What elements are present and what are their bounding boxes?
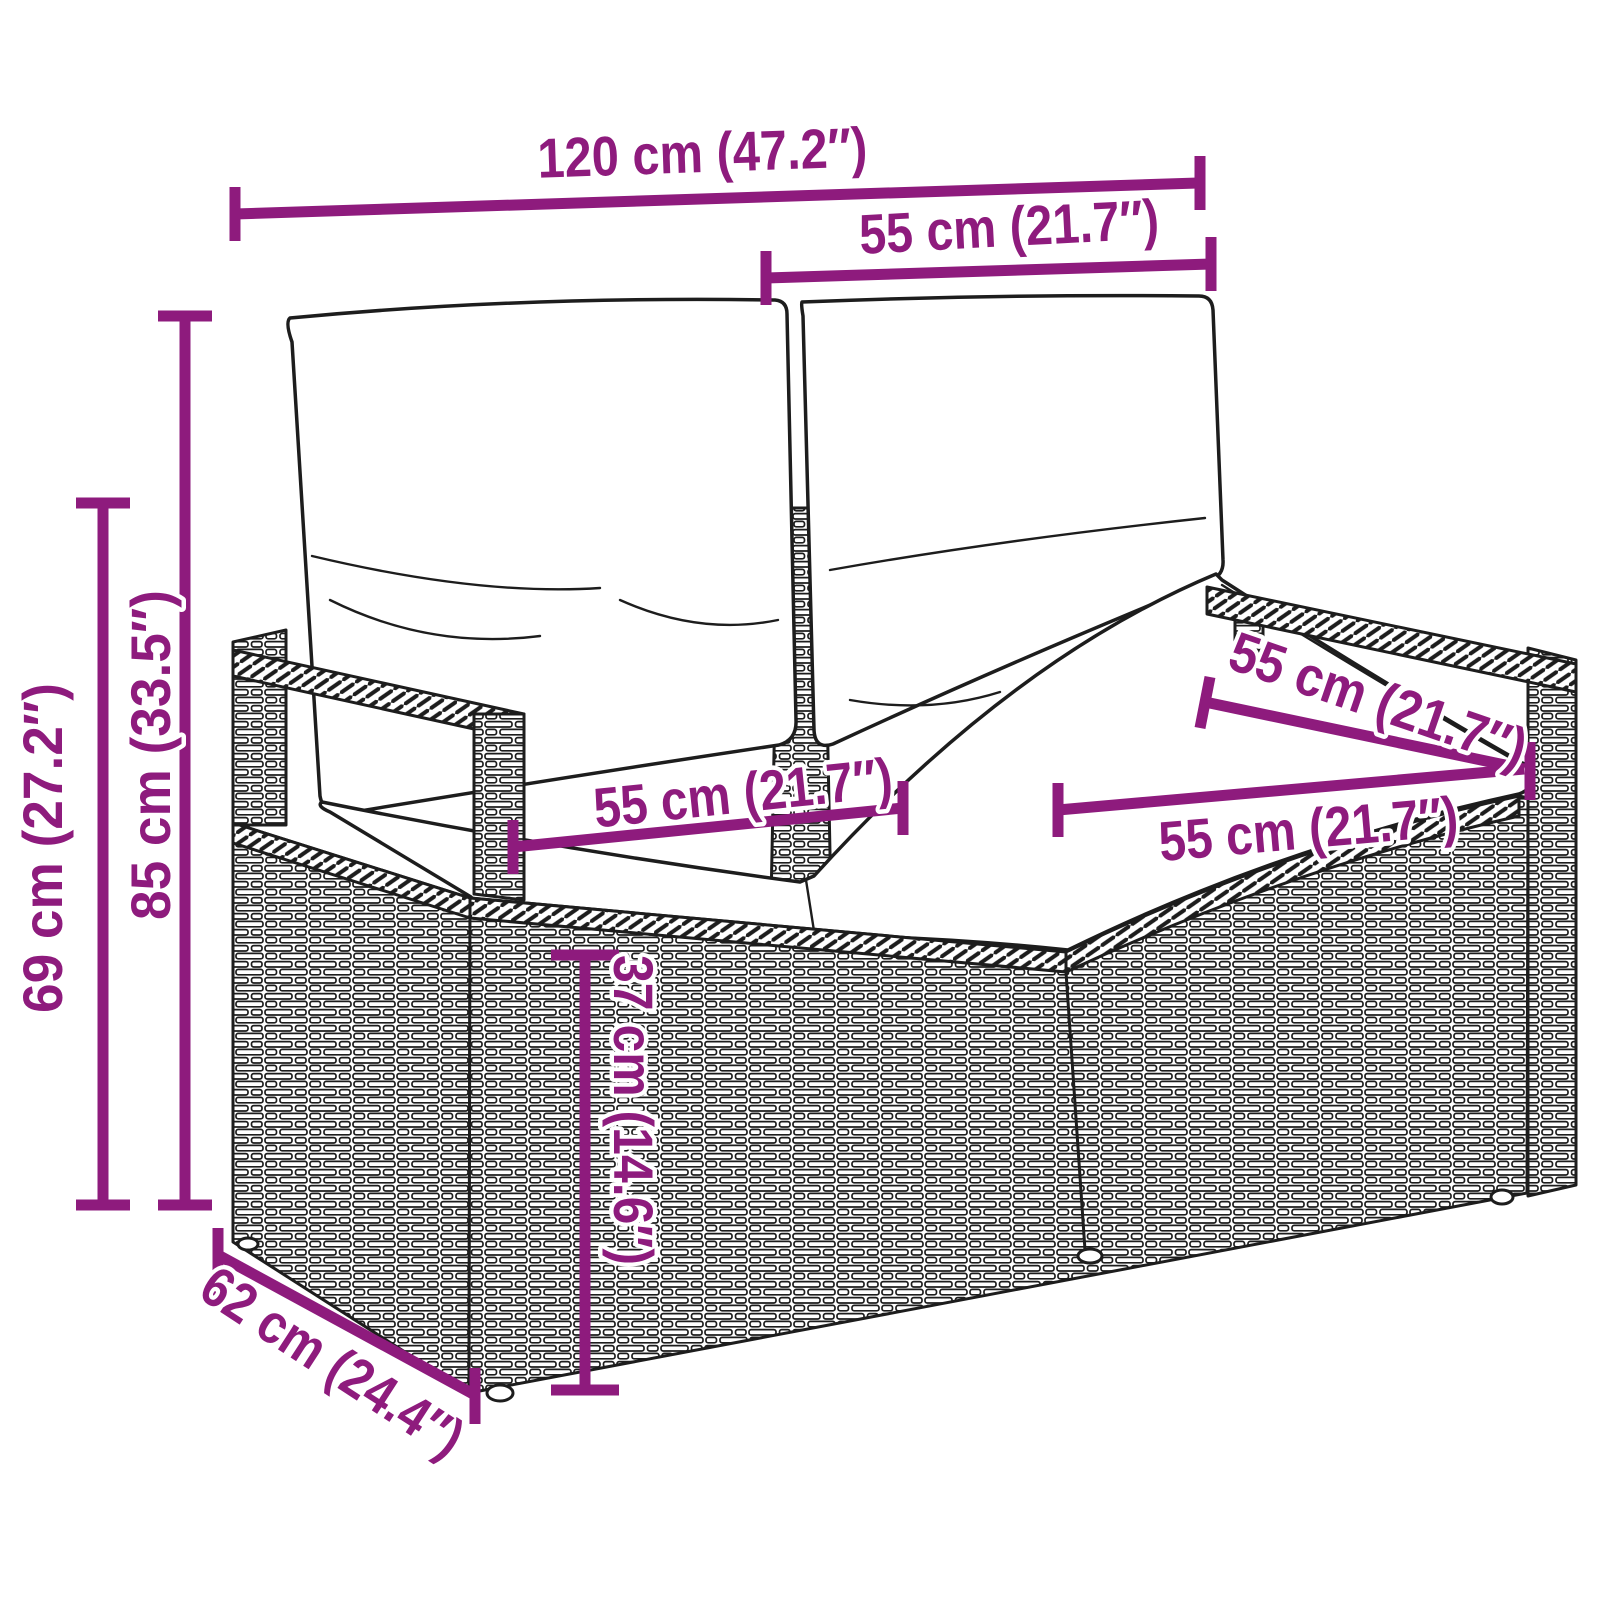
dimension-diagram: 120 cm (47.2″) 55 cm (21.7″) 85 cm (33.5… (0, 0, 1600, 1600)
dim-label-back-cushion-width: 55 cm (21.7″) (858, 187, 1161, 266)
back-cushion-left (288, 299, 796, 814)
dimension-diagram-canvas: 120 cm (47.2″) 55 cm (21.7″) 85 cm (33.5… (0, 0, 1600, 1600)
right-armrest-front-post (1528, 648, 1576, 1196)
dim-label-overall-width: 120 cm (47.2″) (536, 115, 868, 189)
dim-label-armrest-height: 69 cm (27.2″) (11, 683, 74, 1013)
dim-label-seat-height: 37 cm (14.6″) (602, 955, 665, 1265)
dim-label-total-height: 85 cm (33.5″) (119, 590, 182, 920)
